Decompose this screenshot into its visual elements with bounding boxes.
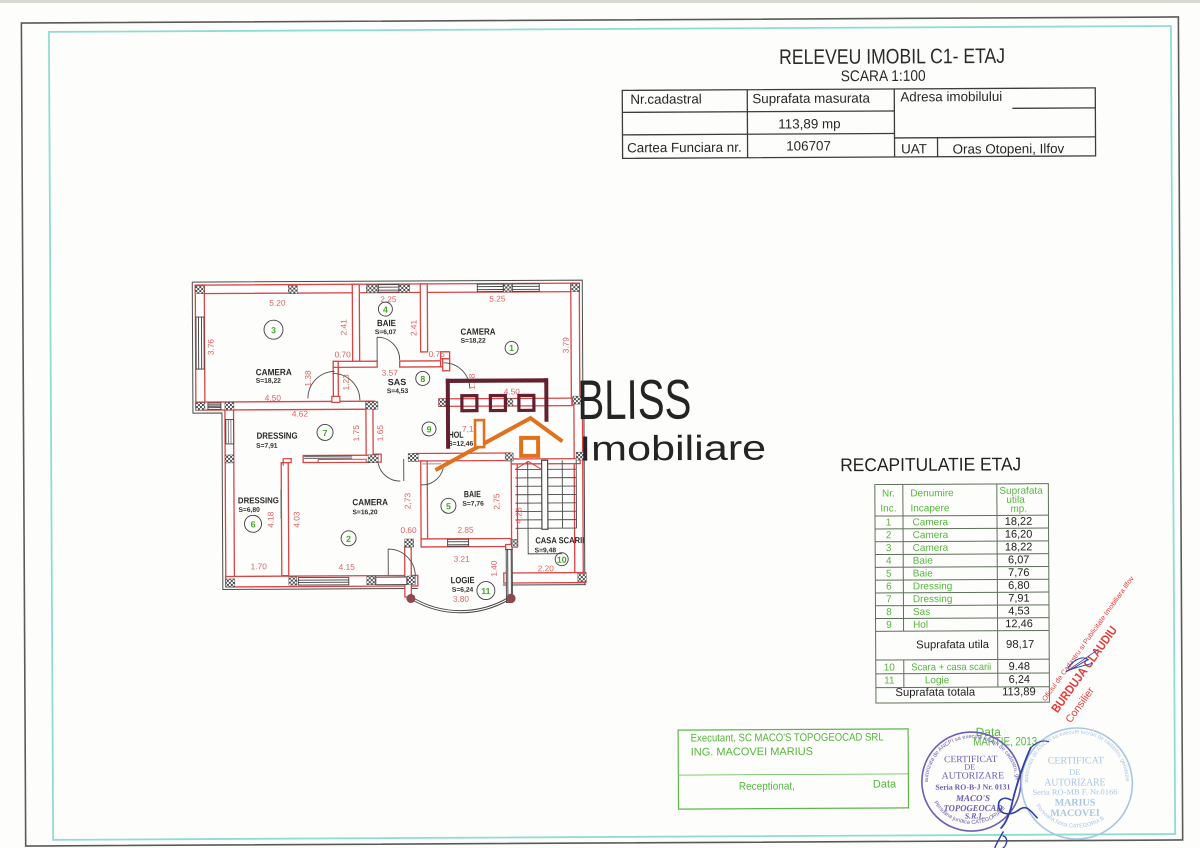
svg-text:10: 10 xyxy=(557,555,567,565)
svg-text:CAMERA: CAMERA xyxy=(460,327,495,337)
svg-text:10: 10 xyxy=(884,662,896,673)
svg-text:2.41: 2.41 xyxy=(408,319,418,336)
svg-text:11: 11 xyxy=(481,586,490,596)
svg-text:Data: Data xyxy=(873,778,897,790)
svg-text:16,20: 16,20 xyxy=(1005,529,1033,541)
svg-text:2: 2 xyxy=(346,534,351,544)
svg-text:Nr.: Nr. xyxy=(882,488,895,499)
svg-text:DRESSING: DRESSING xyxy=(257,431,298,441)
svg-text:BAIE: BAIE xyxy=(377,318,396,328)
svg-text:S=4,53: S=4,53 xyxy=(387,388,409,395)
svg-text:1.75: 1.75 xyxy=(351,425,361,442)
svg-text:Denumire: Denumire xyxy=(910,488,954,499)
svg-text:S=12,46: S=12,46 xyxy=(448,441,473,448)
svg-text:S=6,80: S=6,80 xyxy=(238,507,260,514)
svg-text:Cartea Funciara nr.: Cartea Funciara nr. xyxy=(627,140,742,156)
svg-text:SAS: SAS xyxy=(388,377,407,387)
svg-text:3.79: 3.79 xyxy=(561,337,571,354)
svg-text:0.70: 0.70 xyxy=(335,349,352,359)
svg-text:Baie: Baie xyxy=(913,556,934,567)
svg-text:Seria RO-B-J Nr. 0131: Seria RO-B-J Nr. 0131 xyxy=(935,782,1010,791)
svg-text:Sas: Sas xyxy=(913,607,930,618)
svg-text:RELEVEU IMOBIL C1- ETAJ: RELEVEU IMOBIL C1- ETAJ xyxy=(779,45,1005,69)
svg-text:MACOVEI: MACOVEI xyxy=(1050,808,1100,819)
svg-text:Suprafata masurata: Suprafata masurata xyxy=(752,91,870,107)
svg-text:Scara + casa scarii: Scara + casa scarii xyxy=(911,662,991,673)
svg-text:Suprafata utila: Suprafata utila xyxy=(916,639,990,651)
svg-text:4: 4 xyxy=(886,556,892,567)
svg-text:113,89 mp: 113,89 mp xyxy=(778,116,840,131)
svg-text:Oras Otopeni, Ilfov: Oras Otopeni, Ilfov xyxy=(953,141,1065,157)
svg-text:4.28: 4.28 xyxy=(513,507,523,524)
svg-text:6: 6 xyxy=(251,519,256,529)
svg-text:Dressing: Dressing xyxy=(913,594,953,605)
svg-text:1.40: 1.40 xyxy=(489,560,499,577)
svg-text:S=16,20: S=16,20 xyxy=(352,509,377,516)
svg-text:1.38: 1.38 xyxy=(303,370,313,387)
svg-text:S=18,22: S=18,22 xyxy=(461,338,486,345)
svg-text:Oficiul de Cadastru si Publici: Oficiul de Cadastru si Publicitate Imobi… xyxy=(1041,575,1136,703)
svg-text:S=6,24: S=6,24 xyxy=(452,587,474,594)
svg-text:6: 6 xyxy=(886,581,892,592)
svg-text:5.25: 5.25 xyxy=(489,293,506,303)
svg-text:7,76: 7,76 xyxy=(1008,567,1029,579)
svg-text:6,80: 6,80 xyxy=(1008,580,1029,592)
svg-text:18,22: 18,22 xyxy=(1005,541,1033,553)
svg-text:4,53: 4,53 xyxy=(1008,605,1029,617)
svg-text:Nr.cadastral: Nr.cadastral xyxy=(630,91,702,106)
svg-text:Adresa imobilului: Adresa imobilului xyxy=(900,89,1002,105)
svg-text:2.25: 2.25 xyxy=(380,294,397,304)
svg-text:2.85: 2.85 xyxy=(457,525,474,535)
svg-text:7: 7 xyxy=(886,594,892,605)
svg-text:1: 1 xyxy=(886,517,892,528)
svg-text:Camera: Camera xyxy=(912,517,948,528)
svg-text:Baie: Baie xyxy=(913,568,934,579)
svg-text:Dressing: Dressing xyxy=(913,581,953,592)
svg-text:S=6,07: S=6,07 xyxy=(375,329,397,336)
svg-text:106707: 106707 xyxy=(786,138,831,153)
svg-text:9.48: 9.48 xyxy=(1009,661,1030,673)
svg-text:4: 4 xyxy=(383,305,388,315)
svg-text:Executant, SC MACO'S TOPOGEOCA: Executant, SC MACO'S TOPOGEOCAD SRL xyxy=(691,732,884,745)
svg-text:2.20: 2.20 xyxy=(538,563,555,573)
svg-text:S=9,48: S=9,48 xyxy=(535,547,557,554)
svg-text:4.62: 4.62 xyxy=(292,409,309,419)
svg-text:0.75: 0.75 xyxy=(429,349,446,359)
svg-text:DE: DE xyxy=(1069,767,1080,777)
svg-text:2,75: 2,75 xyxy=(491,493,501,510)
svg-text:Hol: Hol xyxy=(913,620,928,631)
svg-text:3.76: 3.76 xyxy=(206,339,216,356)
svg-text:CASA SCARII: CASA SCARII xyxy=(535,535,584,545)
svg-text:2: 2 xyxy=(886,530,892,541)
svg-text:5.20: 5.20 xyxy=(269,298,286,308)
svg-text:3.21: 3.21 xyxy=(454,554,471,564)
svg-text:CAMERA: CAMERA xyxy=(352,497,388,507)
svg-text:5: 5 xyxy=(886,569,892,580)
svg-text:MARIUS: MARIUS xyxy=(1055,797,1096,808)
svg-text:S=18,22: S=18,22 xyxy=(256,378,281,385)
svg-text:Camera: Camera xyxy=(913,530,949,541)
svg-text:1.23: 1.23 xyxy=(341,374,351,391)
svg-text:4.03: 4.03 xyxy=(291,511,301,528)
svg-text:7: 7 xyxy=(323,428,328,438)
svg-text:S=7,76: S=7,76 xyxy=(462,501,484,508)
svg-text:RECAPITULATIE ETAJ: RECAPITULATIE ETAJ xyxy=(840,453,1021,475)
svg-text:BAIE: BAIE xyxy=(464,489,481,499)
svg-text:1.65: 1.65 xyxy=(375,425,385,442)
svg-text:BLISS: BLISS xyxy=(577,368,691,432)
svg-text:5: 5 xyxy=(446,501,451,511)
svg-text:4.18: 4.18 xyxy=(265,511,275,528)
svg-text:3.57: 3.57 xyxy=(382,368,399,378)
svg-text:3: 3 xyxy=(271,325,276,335)
svg-text:2,73: 2,73 xyxy=(402,493,412,510)
svg-text:6,24: 6,24 xyxy=(1009,674,1030,686)
svg-text:SCARA 1:100: SCARA 1:100 xyxy=(841,68,926,85)
svg-text:1: 1 xyxy=(509,343,514,353)
svg-text:ING. MACOVEI MARIUS: ING. MACOVEI MARIUS xyxy=(691,746,813,759)
svg-text:3.80: 3.80 xyxy=(453,594,470,604)
svg-text:11: 11 xyxy=(884,675,895,686)
svg-text:Receptionat,: Receptionat, xyxy=(739,780,795,792)
svg-text:0.60: 0.60 xyxy=(400,525,417,535)
svg-text:LOGIE: LOGIE xyxy=(451,575,475,585)
svg-text:113,89: 113,89 xyxy=(1002,686,1036,698)
svg-text:3: 3 xyxy=(886,543,892,554)
svg-text:8: 8 xyxy=(420,374,425,384)
svg-text:1.70: 1.70 xyxy=(251,561,268,571)
svg-text:2.41: 2.41 xyxy=(338,319,348,336)
svg-text:UAT: UAT xyxy=(901,141,927,156)
svg-text:8: 8 xyxy=(886,607,892,618)
svg-text:MACO'S: MACO'S xyxy=(955,793,990,803)
svg-text:7,91: 7,91 xyxy=(1008,593,1029,605)
svg-text:4.50: 4.50 xyxy=(265,393,282,403)
svg-text:S=7,91: S=7,91 xyxy=(256,443,278,450)
svg-text:Inc.: Inc. xyxy=(880,503,896,514)
svg-text:18,22: 18,22 xyxy=(1005,516,1033,528)
svg-text:S.R.L.: S.R.L. xyxy=(965,811,986,820)
svg-text:9: 9 xyxy=(886,620,892,631)
svg-text:9: 9 xyxy=(427,424,432,434)
svg-text:mp.: mp. xyxy=(1010,504,1027,515)
svg-text:Suprafata totala: Suprafata totala xyxy=(895,687,976,699)
svg-text:CERTIFICAT: CERTIFICAT xyxy=(1048,755,1104,766)
svg-text:12,46: 12,46 xyxy=(1005,618,1033,630)
svg-text:Seria RO-MB F. Nr.0166: Seria RO-MB F. Nr.0166 xyxy=(1032,787,1117,796)
svg-text:Camera: Camera xyxy=(913,543,949,554)
svg-text:98,17: 98,17 xyxy=(1006,639,1034,651)
svg-text:Imobiliare: Imobiliare xyxy=(579,429,766,469)
svg-text:DRESSING: DRESSING xyxy=(238,495,279,505)
svg-text:CAMERA: CAMERA xyxy=(256,367,293,377)
svg-text:Logie: Logie xyxy=(925,675,950,686)
svg-text:AUTORIZARE: AUTORIZARE xyxy=(942,770,1004,781)
svg-text:4.15: 4.15 xyxy=(339,562,356,572)
svg-text:Incapere: Incapere xyxy=(910,503,949,514)
svg-text:6,07: 6,07 xyxy=(1008,554,1029,566)
